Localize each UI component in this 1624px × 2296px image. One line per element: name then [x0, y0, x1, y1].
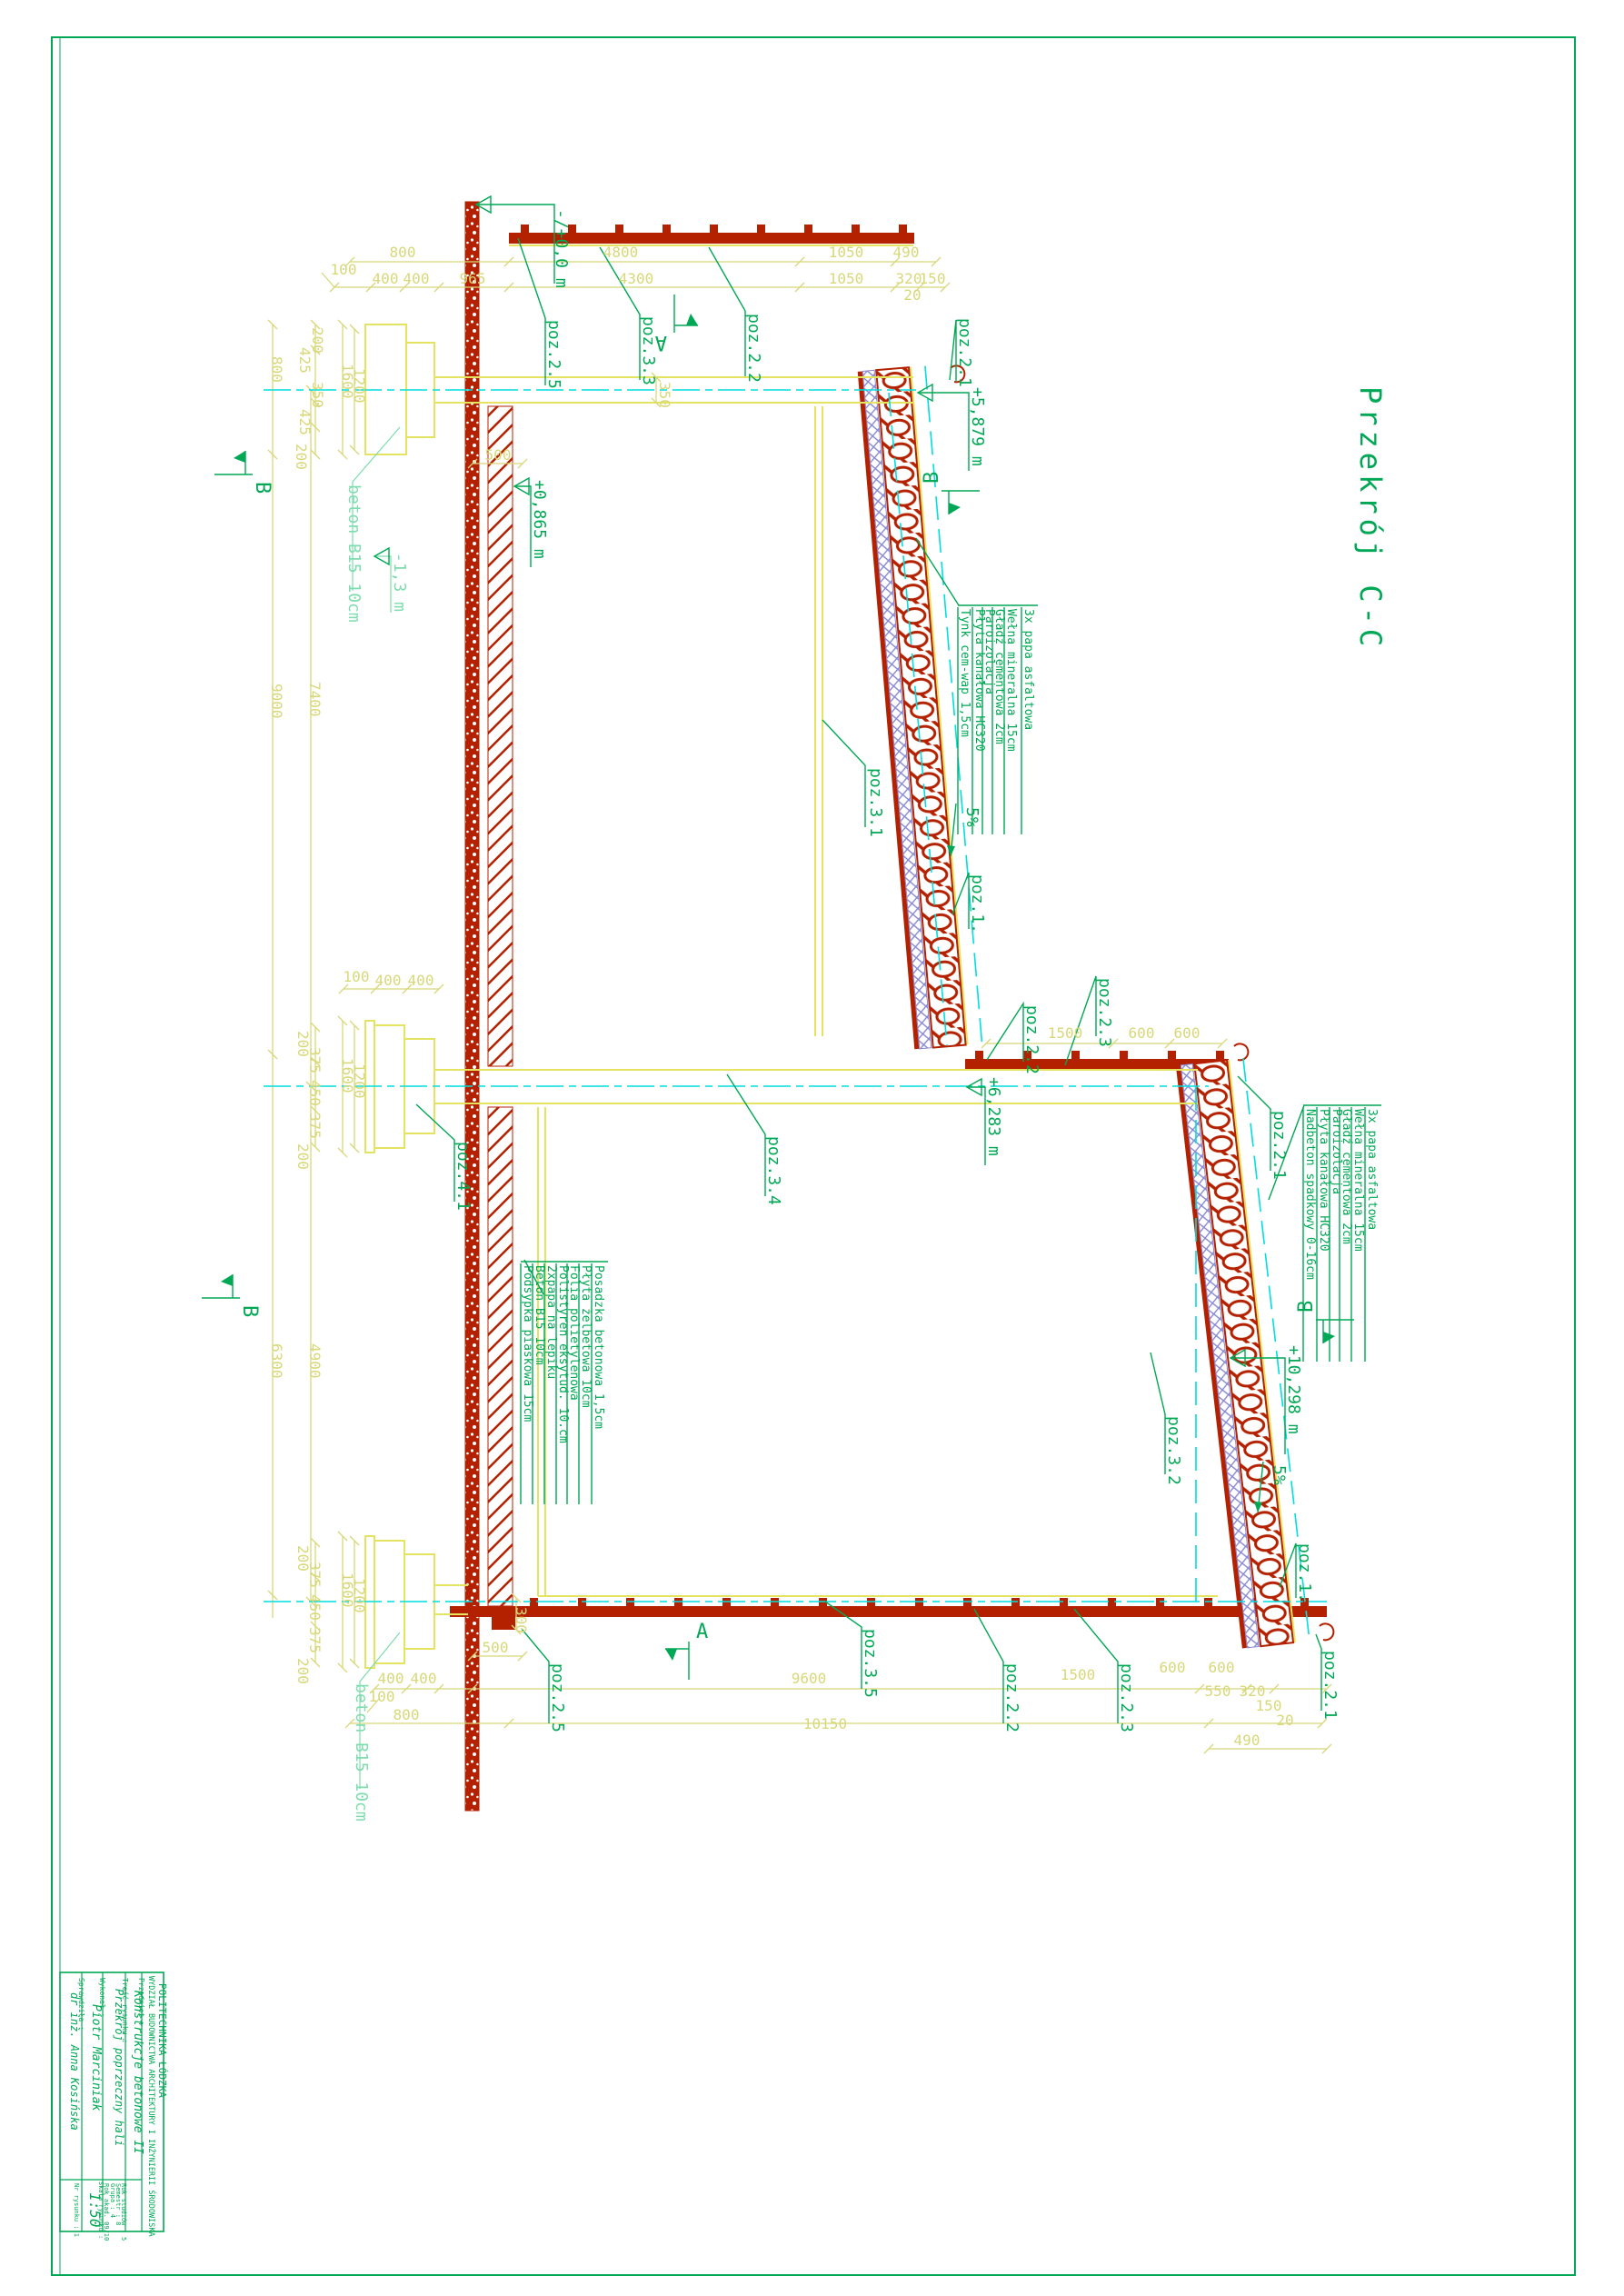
author-value: Piotr Marciniak — [89, 2004, 103, 2111]
section-marker-b: B — [202, 1274, 261, 1317]
annotation-label: poz.4.1 — [453, 1142, 473, 1211]
leader-line — [987, 1003, 1023, 1062]
leader-line — [822, 720, 865, 827]
dimension-label: 150 — [920, 270, 946, 287]
dimension-label: 1600 — [339, 1572, 356, 1608]
layer-line: Płyta kanałowa HC320 — [1317, 1109, 1330, 1252]
dimension-label: 500 — [485, 446, 512, 464]
wall-masonry-strip-upper — [488, 406, 513, 1066]
leader-line — [727, 1074, 765, 1196]
annotation-label: beton B15 10cm — [344, 484, 364, 623]
dimension-label: 400 — [408, 972, 434, 989]
annotation-label: +6,283 m — [984, 1077, 1003, 1156]
dimension-label: 600 — [1160, 1659, 1186, 1676]
leader-line — [1151, 1353, 1165, 1474]
dimension-label: 400 — [373, 270, 399, 287]
annotation-label: poz.3.5 — [861, 1629, 880, 1698]
dimension-label: 7400 — [306, 682, 324, 717]
bottom-wall-band — [450, 1606, 1327, 1617]
dimension-label: 550 — [1205, 1682, 1231, 1700]
bottom-wall-step — [450, 1606, 515, 1630]
dimension-label: 350 — [656, 382, 673, 408]
dimension-label: 6300 — [268, 1343, 285, 1379]
annotation-label: poz.3.2 — [1164, 1416, 1183, 1485]
dimension-label: 300 — [513, 1607, 530, 1633]
dimension-label: 350 — [309, 382, 326, 408]
dimension-label: 600 — [1174, 1024, 1201, 1042]
cad-drawing-canvas: POLITECHNIKA ŁÓDZKA WYDZIAŁ BUDOWNICTWA … — [0, 0, 1624, 2296]
dimension-label: 1500 — [1061, 1666, 1096, 1683]
svg-text:B: B — [251, 482, 274, 494]
floor-layers-callout: Posadzka betonowa 1,5cmPłyta żelbetowa 1… — [521, 1260, 608, 1504]
dimension-label: 490 — [1234, 1732, 1260, 1749]
dimension-label: 4800 — [603, 244, 639, 261]
svg-text:A: A — [655, 331, 667, 354]
leader-line — [518, 238, 545, 385]
annotation-label: poz.1. — [1295, 1543, 1314, 1602]
section-marker-b: B — [1295, 1301, 1354, 1343]
dimension-label: 9600 — [792, 1670, 827, 1687]
dimension-label: 9000 — [268, 684, 285, 719]
annotation-label: 5% — [1270, 1465, 1289, 1485]
dimension-label: 800 — [268, 356, 285, 383]
pilaster-ticks-top — [521, 225, 907, 233]
dimension-label: 965 — [460, 270, 486, 287]
annotation-label: poz.2.1 — [1320, 1651, 1340, 1720]
leader-line — [600, 247, 640, 380]
annotation-label: poz.2.2 — [744, 314, 763, 383]
dimension-label: 100 — [369, 1688, 395, 1705]
drawing-title-value: Przekrój poprzeczny hali — [113, 1989, 125, 2146]
dimension-label: 500 — [483, 1639, 509, 1656]
dimension-label: 400 — [378, 1670, 404, 1687]
layer-line: Nadbeton spadkowy 0-16cm — [1303, 1109, 1317, 1280]
title-block: POLITECHNIKA ŁÓDZKA WYDZIAŁ BUDOWNICTWA … — [60, 1972, 168, 2241]
svg-text:B: B — [921, 472, 943, 484]
leader-line — [514, 486, 531, 567]
university-name: POLITECHNIKA ŁÓDZKA — [156, 1983, 168, 2098]
subject-value: Konstrukcje betonowe II — [131, 1990, 144, 2154]
annotation-label: -1,3 m — [390, 553, 409, 612]
dimension-label: 425 — [296, 409, 314, 435]
dimension-label: 200 — [293, 444, 310, 470]
leader-line — [476, 205, 554, 284]
dimension-label: 1600 — [339, 364, 356, 399]
annotation-label: poz.2.3 — [1095, 978, 1114, 1047]
checker-value: dr inż. Anna Kosińska — [68, 1992, 81, 2131]
section-marker-b: B — [921, 472, 980, 514]
layer-line: Tynk cem-wap 1,5cm — [958, 609, 971, 737]
dimension-label: 425 — [296, 347, 314, 374]
dimension-label: 375 — [306, 1113, 324, 1139]
annotation-label: -/+0,0 m — [552, 209, 571, 288]
dimension-label: 375 — [306, 1562, 324, 1588]
layer-line: 3x papa asfaltowa — [1365, 1109, 1379, 1230]
annotation-label: poz.2.2 — [1022, 1005, 1041, 1074]
annotation-label: +10,298 m — [1284, 1345, 1303, 1434]
dimension-label: 4900 — [306, 1343, 324, 1379]
leader-line — [709, 247, 745, 376]
dimension-ticks — [268, 257, 1331, 1753]
annotation-label: poz.2.2 — [1002, 1663, 1021, 1732]
annotation-label: +0,865 m — [530, 480, 549, 559]
leader-line — [950, 320, 956, 382]
leader-line — [522, 1629, 549, 1723]
dimension-label: 100 — [331, 261, 357, 278]
drawing-page: POLITECHNIKA ŁÓDZKA WYDZIAŁ BUDOWNICTWA … — [0, 0, 1624, 2296]
dimension-label: 20 — [903, 286, 921, 304]
annotation-label: poz.1. — [968, 874, 987, 933]
svg-text:B: B — [238, 1305, 261, 1317]
dimension-label: 1050 — [829, 270, 864, 287]
dimension-label: 600 — [1209, 1659, 1235, 1676]
scale-value: 1:50 — [86, 2192, 104, 2228]
svg-text:B: B — [1295, 1301, 1318, 1313]
dimension-label: 10150 — [803, 1715, 847, 1732]
section-marker-b: B — [214, 451, 274, 494]
dimension-label: 4300 — [619, 270, 654, 287]
annotation-label: poz.2.5 — [544, 320, 563, 389]
leader-line — [918, 393, 969, 471]
dimension-label: 400 — [375, 972, 402, 989]
layer-line: Posadzka betonowa 1,5cm — [592, 1265, 605, 1429]
dimension-label: 400 — [404, 270, 430, 287]
layer-line: Płyta kanałowa HC320 — [972, 609, 986, 752]
dimension-label: 375 — [306, 1627, 324, 1653]
dimension-label: 200 — [294, 1143, 312, 1170]
layer-line: 3x papa asfaltowa — [1021, 609, 1035, 730]
dimension-label: 320 — [896, 270, 922, 287]
annotation-label: +5,879 m — [968, 387, 987, 466]
annotation-label: poz.2.5 — [548, 1663, 567, 1732]
dimension-label: 600 — [1129, 1024, 1155, 1042]
wall-masonry-strip-lower — [488, 1107, 513, 1606]
dimension-label: 450 — [306, 1594, 324, 1621]
annotation-label: poz.2.1 — [1270, 1111, 1289, 1180]
section-marker-a: A — [665, 1621, 708, 1680]
dimension-label: 800 — [390, 244, 416, 261]
annotation-label: poz.2.3 — [1117, 1663, 1136, 1732]
leader-line — [967, 1087, 985, 1165]
dimension-label: 450 — [306, 1080, 324, 1106]
dimension-label: 100 — [344, 968, 370, 985]
leader-line — [974, 1609, 1003, 1723]
dimension-label: 1500 — [1048, 1024, 1083, 1042]
cornice-hook-bottom — [1320, 1623, 1333, 1640]
dimension-label: 375 — [306, 1047, 324, 1073]
annotation-label: poz.3.1 — [866, 768, 885, 837]
cornice-hook-mid — [1234, 1043, 1248, 1060]
faculty-name: WYDZIAŁ BUDOWNICTWA ARCHITEKTURY I INŻYN… — [146, 1976, 157, 2237]
dimension-label: 400 — [411, 1670, 437, 1687]
dimension-label: 20 — [1276, 1712, 1293, 1729]
drawing-title: Przekrój C-C — [1353, 386, 1388, 651]
layer-line: Paroizolacja — [1330, 1109, 1343, 1194]
annotation-label: poz.2.1 — [955, 318, 974, 387]
svg-text:A: A — [696, 1621, 708, 1643]
section-marker-a: A — [655, 294, 698, 354]
dimension-label: 800 — [394, 1706, 420, 1723]
dimension-lines — [273, 262, 1327, 1749]
leader-line — [1065, 976, 1096, 1065]
dimension-label: 490 — [893, 244, 920, 261]
dimension-label: 1050 — [829, 244, 864, 261]
dimension-label: 200 — [294, 1658, 312, 1684]
pilaster-ticks-mid — [975, 1051, 1224, 1059]
wall-core-strip — [465, 202, 479, 1811]
annotation-label: poz.3.4 — [764, 1136, 783, 1205]
drawing-number-field: Nr rysunku : 1 — [73, 2183, 80, 2237]
dimension-label: 1600 — [339, 1058, 356, 1093]
layer-line: Podsypka piaskowa 15cm — [521, 1265, 534, 1422]
generated-annotations: -/+0,0 m+5,879 m+0,865 m-1,3 m+6,283 m+1… — [202, 196, 1381, 1822]
